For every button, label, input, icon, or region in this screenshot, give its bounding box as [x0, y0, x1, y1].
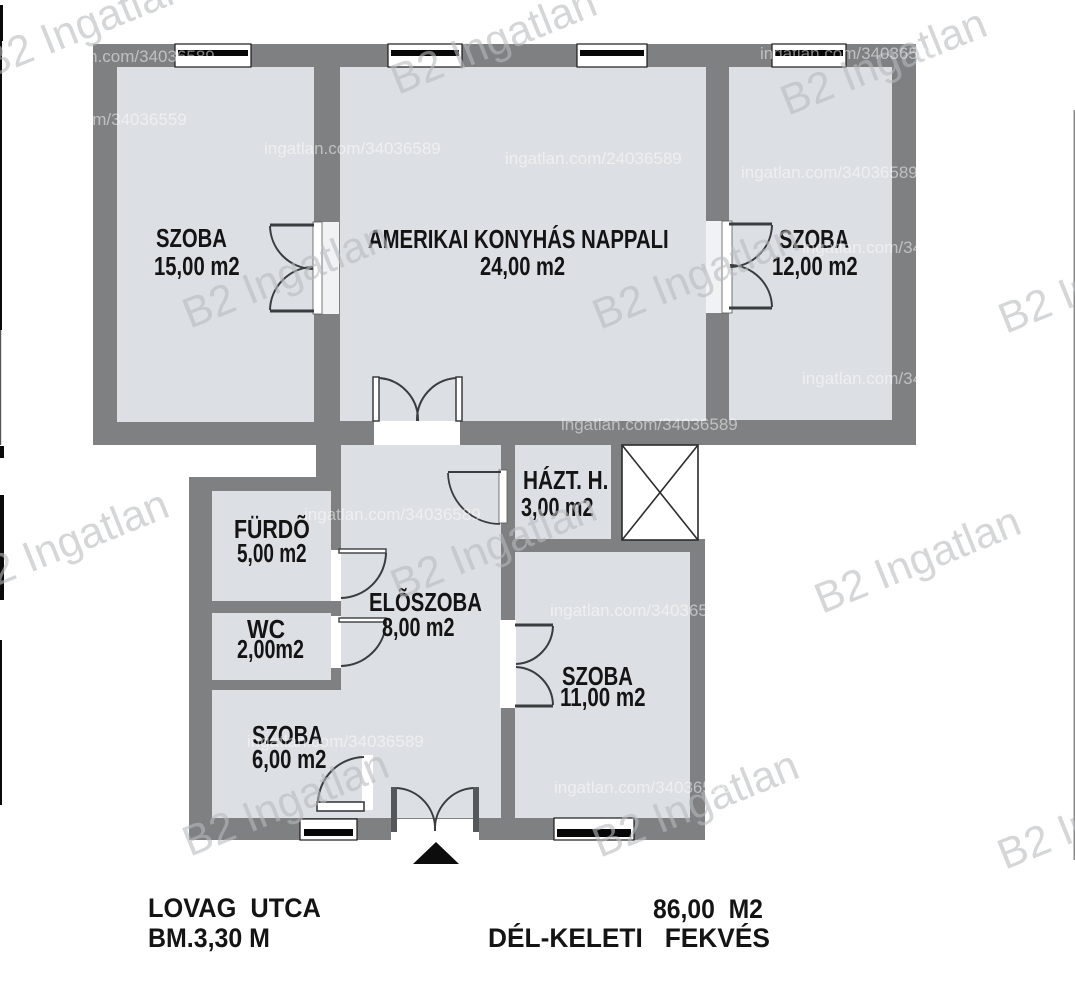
- svg-text:86,00 M2: 86,00 M2: [653, 895, 763, 924]
- svg-text:DÉL-KELETI FEKVÉS: DÉL-KELETI FEKVÉS: [488, 923, 770, 953]
- svg-text:2,00m2: 2,00m2: [237, 634, 304, 663]
- svg-text:ingatlan.com/34036589: ingatlan.com/34036589: [802, 369, 979, 388]
- svg-text:ingatlan.com/34036589: ingatlan.com/34036589: [550, 601, 727, 620]
- svg-text:ingatlan.com/34036589: ingatlan.com/34036589: [554, 778, 731, 797]
- svg-text:AMERIKAI KONYHÁS NAPPALI: AMERIKAI KONYHÁS NAPPALI: [368, 223, 669, 253]
- svg-text:LOVAG UTCA: LOVAG UTCA: [148, 892, 321, 923]
- svg-text:ingatlan.com/34036589: ingatlan.com/34036589: [561, 415, 738, 434]
- svg-text:ingatlan.com/34036589: ingatlan.com/34036589: [247, 732, 424, 751]
- svg-text:ingatlan.com/34036589: ingatlan.com/34036589: [760, 44, 937, 63]
- svg-text:ingatlan.com/34036589: ingatlan.com/34036589: [741, 163, 918, 182]
- svg-text:ingatlan.com/34036589: ingatlan.com/34036589: [38, 47, 215, 66]
- svg-text:11,00 m2: 11,00 m2: [560, 683, 646, 712]
- svg-text:BM.3,30 M: BM.3,30 M: [148, 922, 270, 953]
- svg-text:ingatlan.com/24036589: ingatlan.com/24036589: [505, 149, 682, 168]
- svg-text:24,00 m2: 24,00 m2: [480, 252, 565, 281]
- svg-text:ingatlan.com/34036589: ingatlan.com/34036589: [802, 238, 979, 257]
- svg-text:ingatlan.com/34036559: ingatlan.com/34036559: [10, 110, 187, 129]
- svg-text:ingatlan.com/34036589: ingatlan.com/34036589: [304, 505, 481, 524]
- svg-text:HÁZT. H.: HÁZT. H.: [523, 465, 608, 495]
- svg-text:SZOBA: SZOBA: [156, 224, 227, 253]
- svg-text:5,00 m2: 5,00 m2: [237, 538, 307, 568]
- svg-text:8,00 m2: 8,00 m2: [382, 612, 454, 641]
- svg-text:ingatlan.com/34036589: ingatlan.com/34036589: [264, 139, 441, 158]
